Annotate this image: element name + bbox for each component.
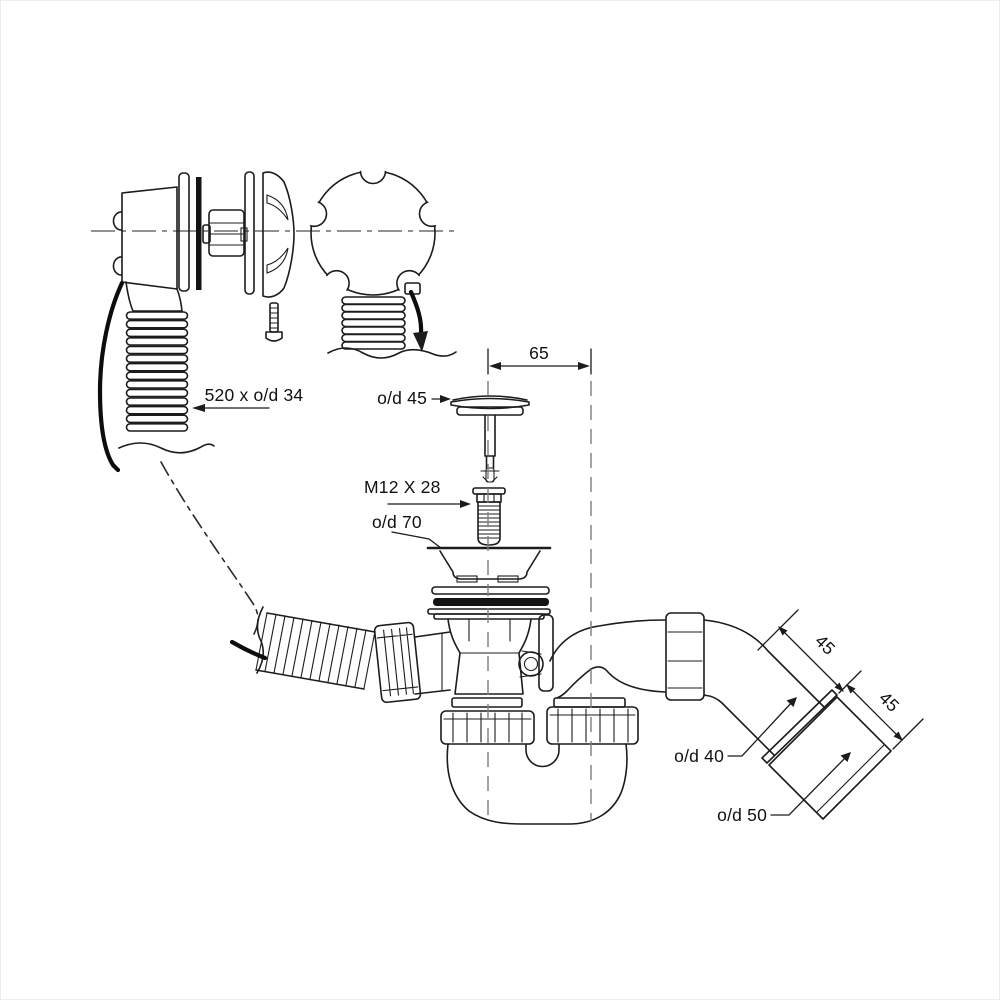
overflow-hose-to-waste xyxy=(232,607,450,703)
trap-seal-ring xyxy=(554,698,625,707)
bolt-label: M12 X 28 xyxy=(364,477,441,497)
elbow-nut xyxy=(666,613,704,700)
overflow-cable xyxy=(100,283,122,470)
od50-callout: o/d 50 xyxy=(717,752,851,825)
hose-compression-nut xyxy=(374,622,421,703)
hose-dimension-callout: 520 x o/d 34 xyxy=(192,385,303,412)
dimension-65: 65 xyxy=(488,343,591,374)
trap-cup xyxy=(447,744,627,824)
overflow-flange-washer xyxy=(179,173,189,291)
overflow-rubber-gasket xyxy=(196,177,202,290)
overflow-backnut xyxy=(203,210,247,256)
overflow-body-side-view xyxy=(113,187,182,311)
flange-callout: o/d 70 xyxy=(372,512,441,548)
trap-nut-right xyxy=(547,707,638,744)
overflow-fixing-screw xyxy=(266,303,282,341)
dim-45-lower-label: 45 xyxy=(875,688,903,716)
flange-label: o/d 70 xyxy=(372,512,422,532)
outlet-step-flange xyxy=(762,690,837,763)
plug-callout: o/d 45 xyxy=(377,388,451,408)
bath-plug xyxy=(451,396,529,482)
od40-label: o/d 40 xyxy=(674,746,724,766)
flat-washer xyxy=(432,587,549,594)
bolt-callout: M12 X 28 xyxy=(364,477,471,508)
dimension-45-upper: 45 xyxy=(758,610,861,693)
hose-break-line xyxy=(119,443,214,453)
hose-routing-path xyxy=(161,462,258,634)
rubber-seal xyxy=(433,598,549,606)
grill-notches xyxy=(302,159,445,296)
outlet-sleeve xyxy=(769,697,891,819)
diagram-canvas: 520 x o/d 34 65 o/d 45 M12 X 28 xyxy=(0,0,1000,1000)
fixing-bolt xyxy=(473,488,505,545)
hose-dimension-label: 520 x o/d 34 xyxy=(205,385,304,405)
strainer-flange xyxy=(428,548,550,582)
dim-45-upper-label: 45 xyxy=(811,631,839,659)
overflow-dome-cover xyxy=(263,172,294,297)
dim-65-label: 65 xyxy=(529,343,549,363)
overflow-grill-front-view xyxy=(302,159,445,296)
trap-u-bend xyxy=(441,698,638,824)
trap-outlet-pipe xyxy=(550,620,665,698)
plug-label: o/d 45 xyxy=(377,388,427,408)
waste-body xyxy=(428,609,553,707)
front-view-cable-arrow xyxy=(411,292,428,352)
overflow-backplate xyxy=(245,172,254,294)
bath-waste-trap-diagram: 520 x o/d 34 65 o/d 45 M12 X 28 xyxy=(1,1,999,999)
od50-label: o/d 50 xyxy=(717,805,767,825)
front-view-hose xyxy=(328,297,456,358)
trap-weir-notch xyxy=(526,744,559,767)
